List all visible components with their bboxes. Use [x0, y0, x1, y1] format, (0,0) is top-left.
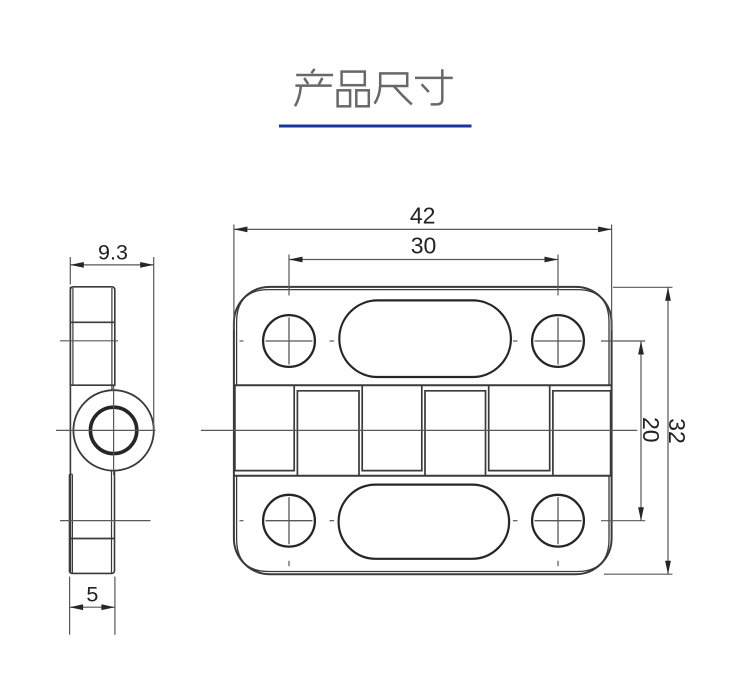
svg-text:5: 5 — [86, 583, 98, 607]
svg-text:20: 20 — [638, 417, 664, 443]
svg-text:9.3: 9.3 — [98, 241, 128, 265]
svg-text:42: 42 — [410, 203, 436, 229]
svg-text:32: 32 — [664, 418, 690, 444]
svg-text:30: 30 — [411, 233, 437, 259]
